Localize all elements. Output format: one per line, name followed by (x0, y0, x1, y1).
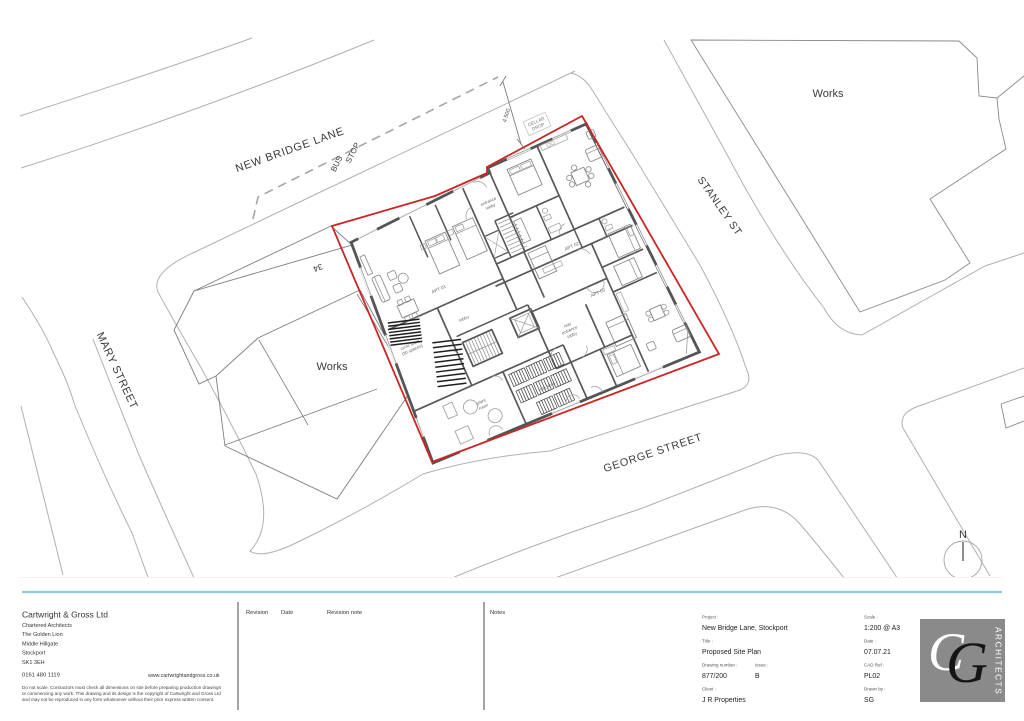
svg-text:Revision note: Revision note (327, 610, 362, 616)
svg-text:Issue :: Issue : (755, 663, 768, 668)
svg-text:CAD Ref :: CAD Ref : (864, 663, 884, 668)
svg-text:Works: Works (813, 88, 844, 100)
svg-text:Date: Date (281, 610, 293, 616)
svg-text:SG: SG (864, 697, 874, 704)
svg-text:Title :: Title : (702, 639, 713, 644)
svg-text:Proposed Site Plan: Proposed Site Plan (702, 649, 761, 656)
svg-text:07.07.21: 07.07.21 (864, 649, 891, 656)
svg-text:B: B (755, 673, 760, 680)
svg-text:0161 480 1119: 0161 480 1119 (22, 673, 60, 679)
svg-text:and may not be reproduced in a: and may not be reproduced in any form wh… (22, 697, 214, 702)
svg-text:Notes: Notes (490, 610, 505, 616)
svg-text:Scale :: Scale : (864, 615, 878, 620)
svg-text:Chartered Architects: Chartered Architects (22, 623, 72, 629)
svg-text:Project :: Project : (702, 615, 719, 620)
svg-text:Middle Hillgate: Middle Hillgate (22, 641, 58, 647)
svg-text:or commencing any work. This d: or commencing any work. This drawing and… (22, 691, 221, 696)
svg-text:The Golden Lion: The Golden Lion (22, 632, 63, 638)
svg-text:877/200: 877/200 (702, 673, 727, 680)
svg-text:Client :: Client : (702, 687, 716, 692)
svg-text:Cartwright & Gross Ltd: Cartwright & Gross Ltd (22, 610, 108, 620)
svg-text:New Bridge Lane, Stockport: New Bridge Lane, Stockport (702, 625, 788, 632)
svg-text:G: G (946, 630, 988, 695)
svg-text:Stockport: Stockport (22, 651, 46, 657)
svg-text:Works: Works (317, 361, 348, 373)
svg-text:N: N (959, 529, 967, 541)
svg-text:Drawing number :: Drawing number : (702, 663, 738, 668)
svg-text:ARCHITECTS: ARCHITECTS (994, 627, 1003, 695)
svg-text:Drawn by :: Drawn by : (864, 687, 886, 692)
svg-text:PL02: PL02 (864, 673, 880, 680)
svg-text:1:200 @ A3: 1:200 @ A3 (864, 625, 900, 632)
svg-text:Revision: Revision (246, 610, 268, 616)
svg-text:SK1 3EH: SK1 3EH (22, 660, 45, 666)
svg-text:Do not scale. Contractors must: Do not scale. Contractors must check all… (22, 685, 222, 690)
svg-text:J R Properties: J R Properties (702, 697, 746, 704)
svg-text:www.cartwrightandgross.co.uk: www.cartwrightandgross.co.uk (148, 673, 220, 679)
svg-text:Date :: Date : (864, 639, 876, 644)
